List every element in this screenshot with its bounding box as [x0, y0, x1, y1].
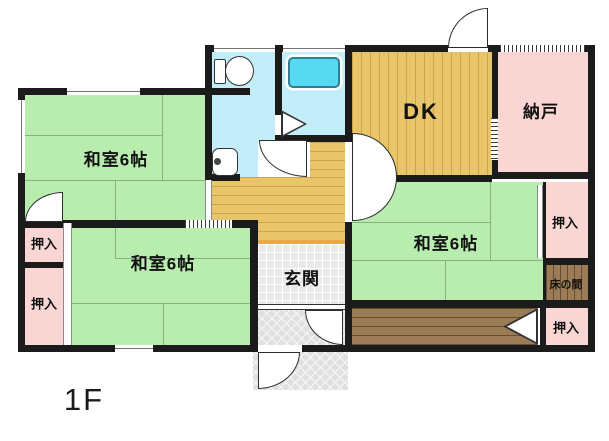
- wall: [488, 45, 500, 52]
- sliding-door-nw-hall: [205, 180, 212, 220]
- wall-nando-south: [492, 172, 595, 179]
- wall: [205, 45, 214, 52]
- genkan-step-edge: [258, 240, 345, 244]
- faucet-icon: [214, 158, 221, 165]
- door-opening-hall-east: [345, 142, 352, 222]
- room-label-oshiire-east-upper: 押入: [552, 213, 578, 232]
- floor-label: 1F: [64, 382, 104, 418]
- wall-washroom-west: [205, 52, 212, 180]
- window-bath-top: [283, 45, 345, 52]
- room-label-oshiire-west-upper: 押入: [31, 234, 57, 253]
- tatami-line: [72, 303, 250, 304]
- bathtub-icon: [288, 57, 340, 88]
- wall-veranda-oshiire: [540, 308, 546, 345]
- window-toilet-top: [214, 45, 275, 52]
- room-label-nando: 納戸: [523, 98, 559, 123]
- tatami-line: [162, 95, 163, 181]
- fusuma-oshiire-west: [63, 223, 72, 345]
- wall-bottom-outer: [153, 345, 258, 352]
- hallway-west: [212, 177, 258, 222]
- wall-east-room-closet: [543, 182, 546, 300]
- tatami-line: [352, 260, 543, 261]
- wall-bottom-outer: [18, 345, 115, 352]
- tatami-line: [163, 303, 164, 345]
- room-washitsu-south: [72, 228, 250, 345]
- door-swing-dk-back: [448, 8, 488, 48]
- window-south-bottom: [115, 345, 153, 352]
- wall-oshiire-tokonoma: [543, 258, 595, 265]
- toilet-bowl-icon: [225, 56, 254, 86]
- room-label-washitsu-nw: 和室6帖: [84, 146, 148, 171]
- wall: [140, 88, 212, 95]
- fusuma-oshiire-east: [537, 185, 543, 258]
- tatami-line: [490, 182, 491, 261]
- tatami-line: [352, 222, 490, 223]
- wall-bath-dk: [345, 52, 352, 142]
- sliding-door-dk-nando: [491, 118, 498, 160]
- wall-toilet-bath: [275, 52, 282, 115]
- room-label-oshiire-west-lower: 押入: [31, 294, 57, 313]
- window-nw-top: [67, 88, 140, 95]
- wall-left-outer: [18, 88, 25, 100]
- door-swing-washroom: [259, 140, 307, 177]
- wall-east-room-south: [352, 300, 595, 308]
- room-label-washitsu-south: 和室6帖: [131, 250, 195, 275]
- tatami-line: [25, 180, 207, 181]
- room-washroom-upper: [212, 90, 275, 142]
- tatami-line: [115, 181, 116, 222]
- wall: [275, 45, 283, 52]
- wall-nw-top: [18, 88, 67, 95]
- wall-toilet-stub: [205, 88, 250, 95]
- sliding-door-hall-south-room: [185, 220, 232, 228]
- room-label-dk: DK: [403, 99, 439, 125]
- wall-left-outer: [18, 173, 25, 352]
- wall-genkan-west: [250, 220, 258, 352]
- hallway-upper: [310, 142, 345, 177]
- room-label-genkan: 玄関: [284, 265, 320, 290]
- door-opening-entrance: [258, 345, 302, 352]
- wall: [345, 45, 356, 52]
- louver-window-nando-top: [500, 45, 585, 52]
- floor-plan: 和室6帖 和室6帖 和室6帖 DK 納戸 玄関 押入 押入 押入 押入 床の間 …: [0, 0, 609, 441]
- tatami-line: [445, 260, 446, 300]
- tatami-line: [115, 228, 116, 258]
- room-label-washitsu-east: 和室6帖: [414, 230, 478, 255]
- tatami-line: [25, 135, 163, 136]
- window-nw-left: [18, 100, 25, 173]
- room-label-tokonoma: 床の間: [550, 276, 583, 292]
- wall-dk-top: [356, 45, 448, 52]
- room-label-oshiire-east-lower: 押入: [553, 318, 579, 337]
- hallway-center: [258, 177, 345, 240]
- wall-genkan-east: [345, 222, 352, 352]
